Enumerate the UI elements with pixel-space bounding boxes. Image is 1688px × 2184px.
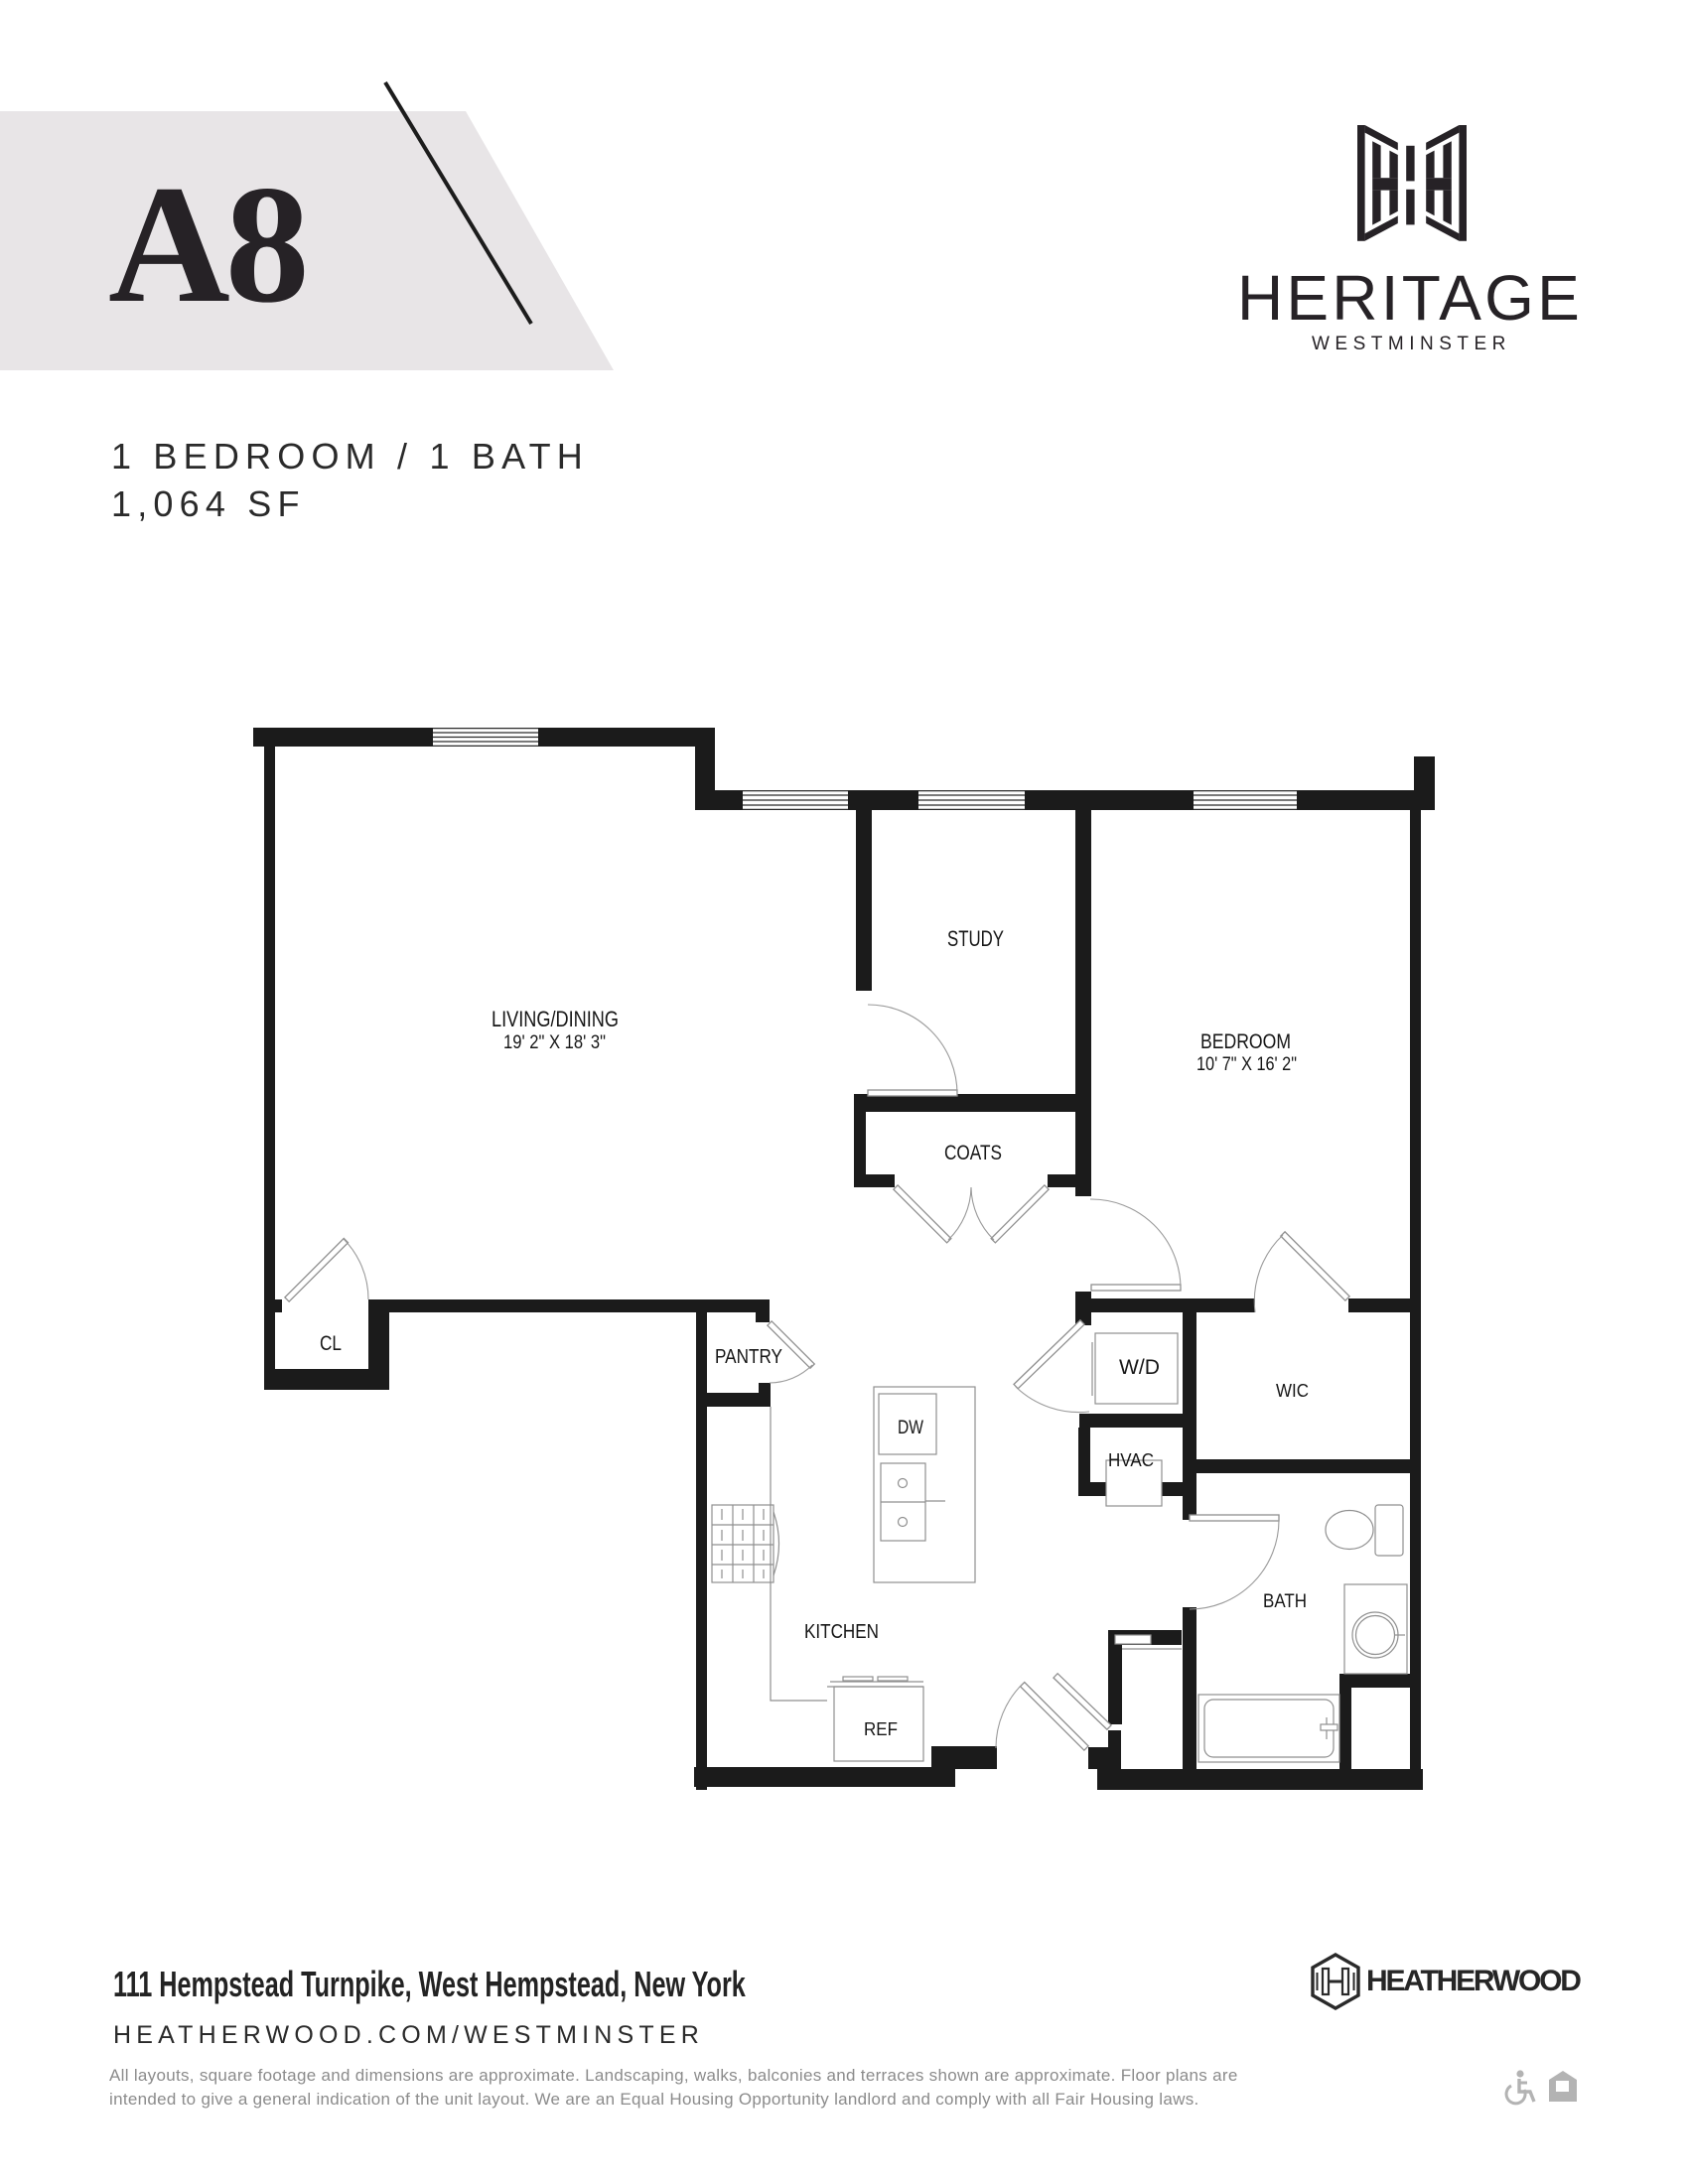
- svg-text:CL: CL: [320, 1332, 342, 1355]
- svg-text:STUDY: STUDY: [947, 926, 1004, 951]
- svg-text:WIC: WIC: [1276, 1381, 1309, 1401]
- svg-text:10' 7" X 16' 2": 10' 7" X 16' 2": [1196, 1054, 1297, 1075]
- svg-text:W/D: W/D: [1119, 1356, 1160, 1379]
- svg-text:19' 2" X 18' 3": 19' 2" X 18' 3": [503, 1032, 606, 1053]
- svg-text:HVAC: HVAC: [1108, 1450, 1154, 1470]
- svg-text:COATS: COATS: [944, 1142, 1002, 1164]
- svg-text:DW: DW: [898, 1418, 923, 1438]
- svg-text:PANTRY: PANTRY: [715, 1346, 782, 1368]
- svg-text:BATH: BATH: [1263, 1591, 1307, 1612]
- svg-text:REF: REF: [864, 1719, 898, 1739]
- svg-text:LIVING/DINING: LIVING/DINING: [492, 1007, 619, 1031]
- svg-text:BEDROOM: BEDROOM: [1200, 1030, 1291, 1053]
- svg-text:KITCHEN: KITCHEN: [804, 1621, 879, 1643]
